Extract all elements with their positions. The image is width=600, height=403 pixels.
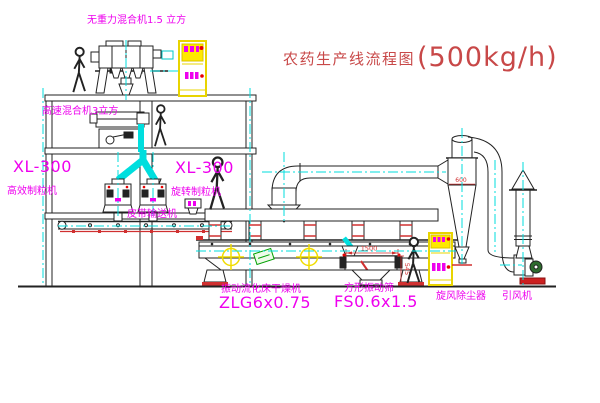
cyclone-marking: 600 xyxy=(455,177,467,184)
gravity-free-mixer xyxy=(91,41,173,95)
diagram-drawing: 1500 545 600 xyxy=(0,0,600,403)
control-cabinet-lower xyxy=(429,233,452,285)
person-figure xyxy=(155,105,166,146)
induced-draft-fan xyxy=(514,255,545,284)
person-figure xyxy=(210,157,224,209)
dryer-feed-elbow xyxy=(185,199,201,214)
person-figure xyxy=(73,48,85,92)
dryer-connectors xyxy=(209,221,412,240)
control-cabinet-upper xyxy=(179,41,206,96)
process-flow-diagram: 1500 545 600 xyxy=(0,0,600,403)
